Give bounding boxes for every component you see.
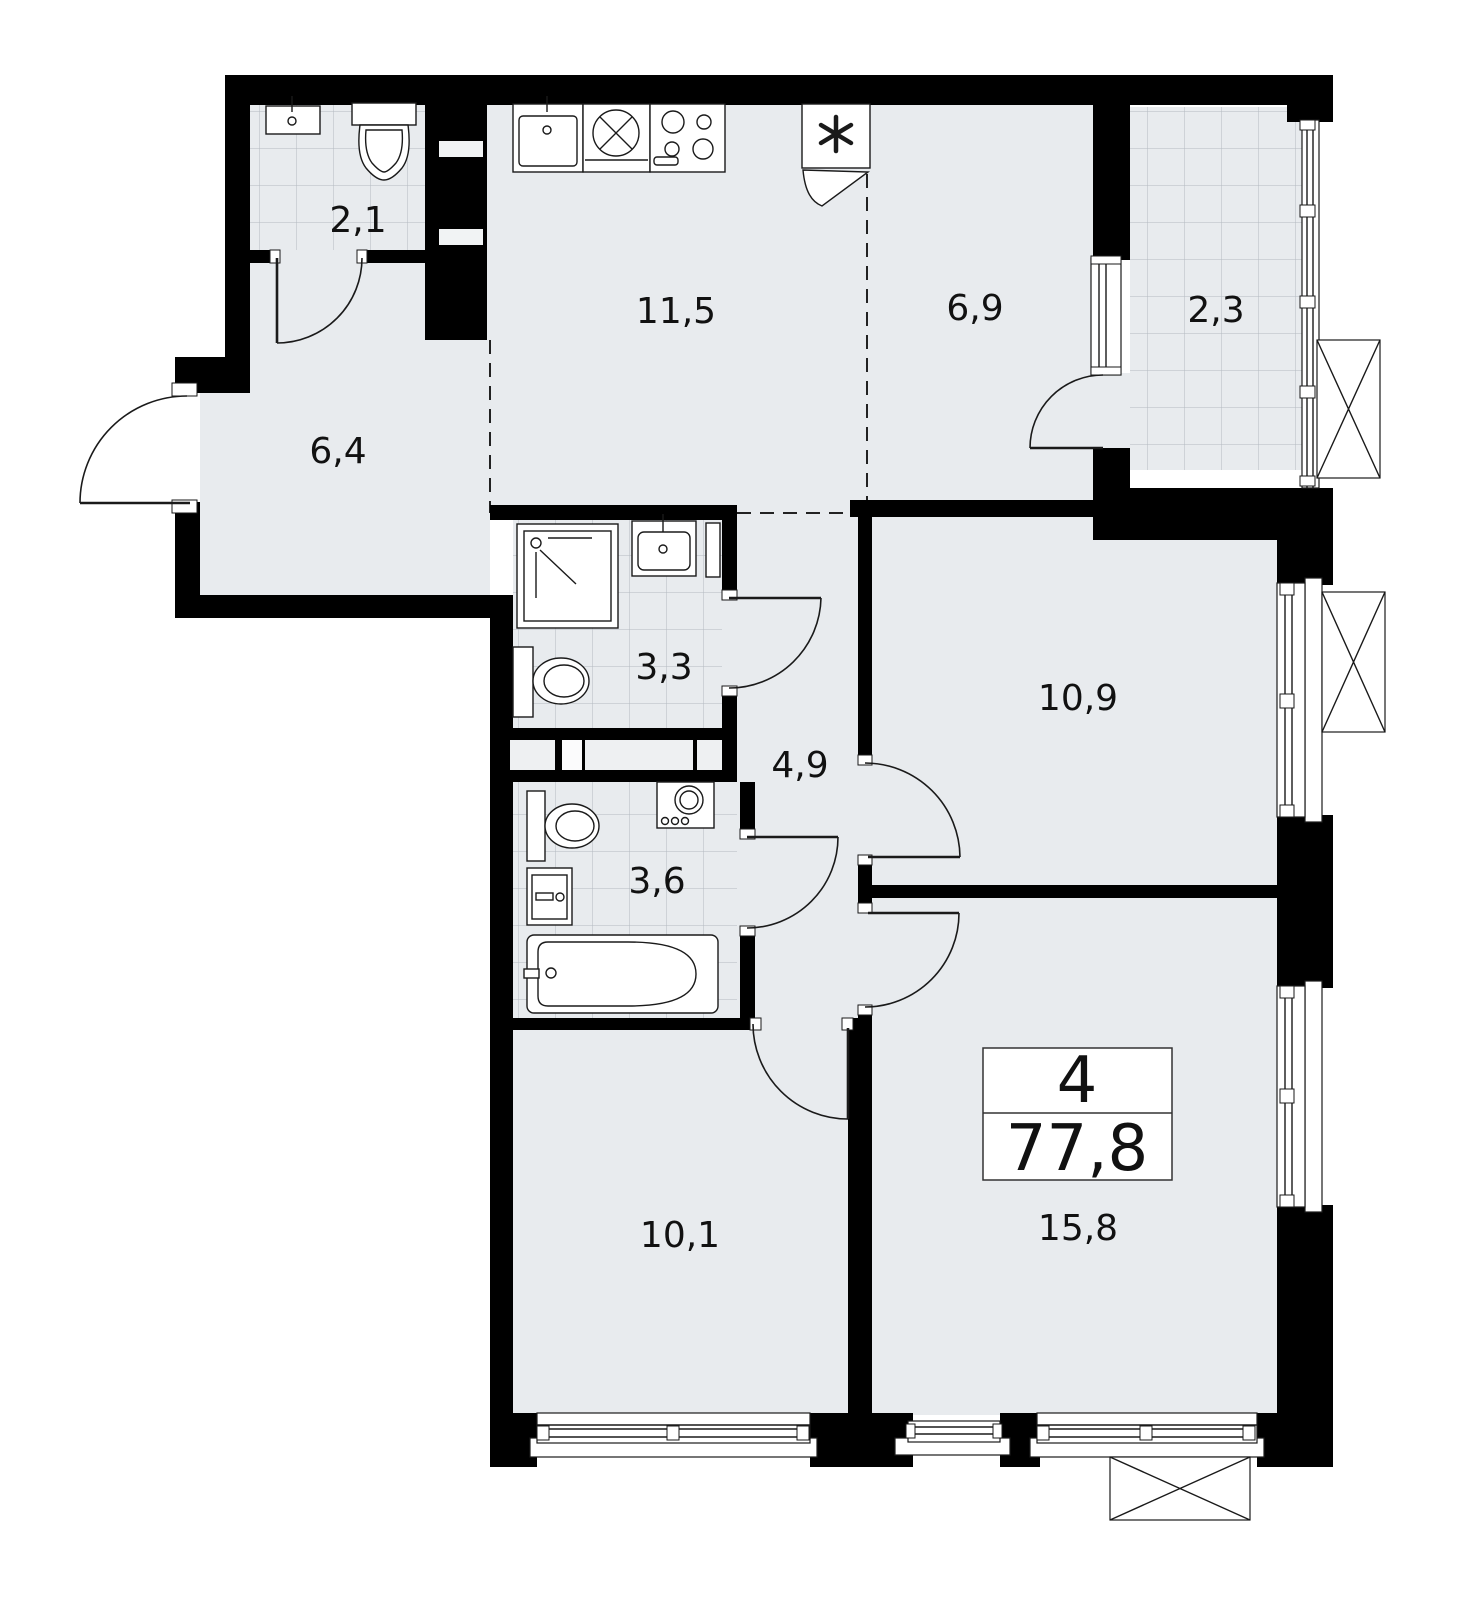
floor-door-strip [277,250,362,263]
wall-bath21-right [362,250,425,263]
air-conditioner-icon [1322,592,1385,732]
wall-balcony-sep-stub [1093,448,1130,488]
room-area-label: 10,9 [1038,678,1118,719]
window-room69-balcony [1091,256,1121,375]
kitchen-sink-icon [513,96,583,172]
floor-plan: 2,1 11,5 6,9 2,3 6,4 3,3 4,9 3,6 10,9 10… [0,0,1465,1600]
wall-bedroom2-top [490,1018,753,1030]
vent-shaft-cell [585,740,693,770]
wall-room69-bedroom1 [850,500,1093,517]
vent-shaft-cell [697,740,722,770]
bathtub-icon [524,935,718,1013]
wall-bedroom2-living [848,1018,872,1415]
vent-shaft-cell [562,740,582,770]
room-area-label: 3,6 [628,861,685,902]
vent-shaft-cell [510,740,555,770]
air-conditioner-icon [1317,340,1380,478]
rooms-count: 4 [1057,1044,1098,1118]
total-area: 77,8 [1006,1112,1149,1186]
shower-icon [517,524,618,628]
washing-machine-icon [657,782,714,828]
window-middle-small [895,1421,1010,1455]
air-conditioner-icon [1110,1457,1250,1520]
floors [200,105,1302,1415]
floor-balcony-door-strip [1093,373,1130,448]
wall-balcony-bottom [1093,488,1333,540]
room-area-label: 2,3 [1187,290,1244,331]
sink-icon [632,514,720,577]
wall-right-c [1277,1205,1333,1413]
room-area-label: 3,3 [635,647,692,688]
wall-top-right-corner [1287,75,1333,122]
wall-bedroom1-living [872,885,1277,898]
wall-shower-top [490,505,737,520]
window-bedroom2 [530,1413,817,1457]
window-bedroom1 [1277,578,1322,822]
info-box: 4 77,8 [983,1044,1172,1186]
wall-entry-lower [175,502,200,597]
room-area-label: 15,8 [1038,1208,1118,1249]
room-area-label: 4,9 [771,745,828,786]
wall-right-b [1277,815,1333,988]
floor-door-strip-101 [753,1018,848,1030]
duct-notch [438,140,484,158]
room-area-label: 6,4 [309,431,366,472]
wall-balcony-sep-upper [1093,105,1130,260]
window-living-right [1277,981,1322,1212]
wall-left-lower [490,595,513,1467]
floor-door-strip-33 [722,598,737,688]
room-area-label: 10,1 [640,1215,720,1256]
washing-machine-icon [583,104,650,172]
wall-shower-right-a [722,520,737,598]
wall-left-upper [225,105,250,357]
tiles-balcony [1130,107,1302,470]
wall-hallway-bottom [175,595,513,618]
wall-bath36-right-b [740,928,755,1018]
window-living [1030,1413,1264,1457]
wall-corridor-right-a [858,505,872,763]
room-area-label: 6,9 [946,288,1003,329]
room-area-label: 11,5 [636,291,716,332]
room-area-label: 2,1 [329,200,386,241]
floor-door-strip-36 [740,837,755,928]
duct-notch [438,228,484,246]
stove-icon [650,104,725,172]
sink-icon [527,868,572,925]
entrance-door [80,383,197,513]
balcony-glazing [1300,120,1319,488]
wall-bottom-right-corner [1257,1413,1333,1467]
wall-top [225,75,1287,105]
vent-shaft-cells [510,740,722,770]
